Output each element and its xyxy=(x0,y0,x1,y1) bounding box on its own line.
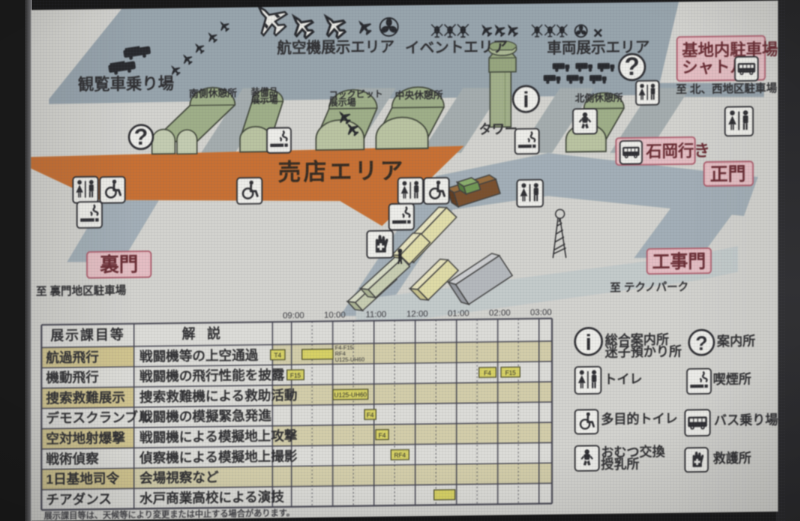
svg-text:i: i xyxy=(585,330,591,355)
svg-text:北側休憩所: 北側休憩所 xyxy=(575,92,623,105)
svg-text:偵察機による模擬地上撮影: 偵察機による模擬地上撮影 xyxy=(139,447,299,465)
svg-text:戦闘機等の上空通過: 戦闘機等の上空通過 xyxy=(140,346,259,364)
svg-text:救護所: 救護所 xyxy=(713,451,752,466)
svg-text:F4-F15:: F4-F15: xyxy=(335,345,355,351)
svg-text:戦闘機の飛行性能を披露: 戦闘機の飛行性能を披露 xyxy=(140,366,286,384)
svg-text:航空機展示エリア: 航空機展示エリア xyxy=(277,38,395,57)
svg-text:10:00: 10:00 xyxy=(324,310,346,320)
svg-text:タワー: タワー xyxy=(479,121,517,136)
svg-text:シャトル: シャトル xyxy=(682,59,746,77)
svg-text:授乳所: 授乳所 xyxy=(601,457,640,472)
svg-text:RF4: RF4 xyxy=(394,452,406,459)
svg-text:U125-UH60: U125-UH60 xyxy=(335,357,365,363)
svg-text:F4: F4 xyxy=(367,412,375,419)
svg-text:迷子預かり所: 迷子預かり所 xyxy=(604,344,682,360)
svg-text:裏門: 裏門 xyxy=(99,253,138,276)
svg-text:?: ? xyxy=(695,333,707,355)
svg-text:至 裏門地区駐車場: 至 裏門地区駐車場 xyxy=(36,283,126,298)
svg-text:展示課目等は、天候等により変更または中止する場合があります。: 展示課目等は、天候等により変更または中止する場合があります。 xyxy=(43,508,295,521)
svg-text:11:00: 11:00 xyxy=(366,309,387,319)
svg-text:南側休憩所: 南側休憩所 xyxy=(189,87,237,100)
svg-text:デモスクランブル: デモスクランブル xyxy=(46,409,151,426)
svg-text:F15: F15 xyxy=(505,370,516,377)
svg-text:売店エリア: 売店エリア xyxy=(278,157,406,185)
svg-text:捜索救難機による救助活動: 捜索救難機による救助活動 xyxy=(140,387,298,405)
svg-text:多目的トイレ: 多目的トイレ xyxy=(601,411,678,427)
svg-text:至 テクノパーク: 至 テクノパーク xyxy=(610,280,689,294)
svg-text:捜索救難展示: 捜索救難展示 xyxy=(46,389,125,406)
svg-text:工事門: 工事門 xyxy=(652,251,706,273)
svg-text:01:00: 01:00 xyxy=(448,308,470,318)
svg-text:F15: F15 xyxy=(290,373,301,380)
svg-text:U125-UH60: U125-UH60 xyxy=(334,392,367,399)
svg-text:戦闘機の模擬緊急発進: 戦闘機の模擬緊急発進 xyxy=(140,407,273,425)
svg-text:戦闘機による模擬地上攻撃: 戦闘機による模擬地上攻撃 xyxy=(140,427,299,445)
svg-text:T4: T4 xyxy=(274,352,282,359)
svg-text:航過飛行: 航過飛行 xyxy=(46,348,99,365)
svg-text:バス乗り場: バス乗り場 xyxy=(714,412,778,428)
svg-text:展示場: 展示場 xyxy=(329,97,356,108)
svg-text:総合案内所: 総合案内所 xyxy=(605,332,669,348)
svg-text:至 北、西地区駐車場: 至 北、西地区駐車場 xyxy=(676,81,777,96)
svg-text:1日基地司令: 1日基地司令 xyxy=(46,470,120,487)
svg-text:F4: F4 xyxy=(484,370,492,377)
svg-text:喫煙所: 喫煙所 xyxy=(713,372,752,387)
svg-text:展示課目等: 展示課目等 xyxy=(51,326,125,343)
svg-text:正門: 正門 xyxy=(710,164,746,184)
svg-text:展示場: 展示場 xyxy=(251,94,278,105)
svg-text:観覧車乗り場: 観覧車乗り場 xyxy=(78,74,174,94)
svg-text:イベントエリア: イベントエリア xyxy=(405,40,508,57)
svg-text:?: ? xyxy=(624,54,639,81)
svg-text:戦術偵察: 戦術偵察 xyxy=(46,450,100,467)
svg-text:12:00: 12:00 xyxy=(406,309,428,319)
svg-text:?: ? xyxy=(134,123,148,149)
svg-text:車両展示エリア: 車両展示エリア xyxy=(547,38,650,57)
svg-text:空対地射爆撃: 空対地射爆撃 xyxy=(46,429,126,446)
svg-text:水戸商業高校による演技: 水戸商業高校による演技 xyxy=(140,488,285,506)
svg-text:i: i xyxy=(523,87,529,112)
svg-text:RF4: RF4 xyxy=(335,352,346,358)
svg-text:トイレ: トイレ xyxy=(604,372,642,387)
svg-text:装備品: 装備品 xyxy=(250,86,278,97)
svg-text:石岡行き: 石岡行き xyxy=(645,141,710,161)
svg-text:解 説: 解 説 xyxy=(182,325,225,342)
svg-text:会場視察など: 会場視察など xyxy=(140,469,220,486)
svg-text:03:00: 03:00 xyxy=(530,307,552,317)
svg-text:案内所: 案内所 xyxy=(716,333,756,348)
svg-text:09:00: 09:00 xyxy=(283,310,305,320)
svg-text:中央休憩所: 中央休憩所 xyxy=(395,89,443,102)
svg-text:02:00: 02:00 xyxy=(489,307,511,317)
svg-text:コックピット: コックピット xyxy=(329,88,383,100)
svg-text:おむつ交換: おむつ交換 xyxy=(601,444,666,460)
svg-text:F4: F4 xyxy=(379,432,387,439)
svg-text:機動飛行: 機動飛行 xyxy=(46,369,99,386)
svg-text:チアダンス: チアダンス xyxy=(46,490,112,507)
svg-text:基地内駐車場: 基地内駐車場 xyxy=(681,40,778,60)
